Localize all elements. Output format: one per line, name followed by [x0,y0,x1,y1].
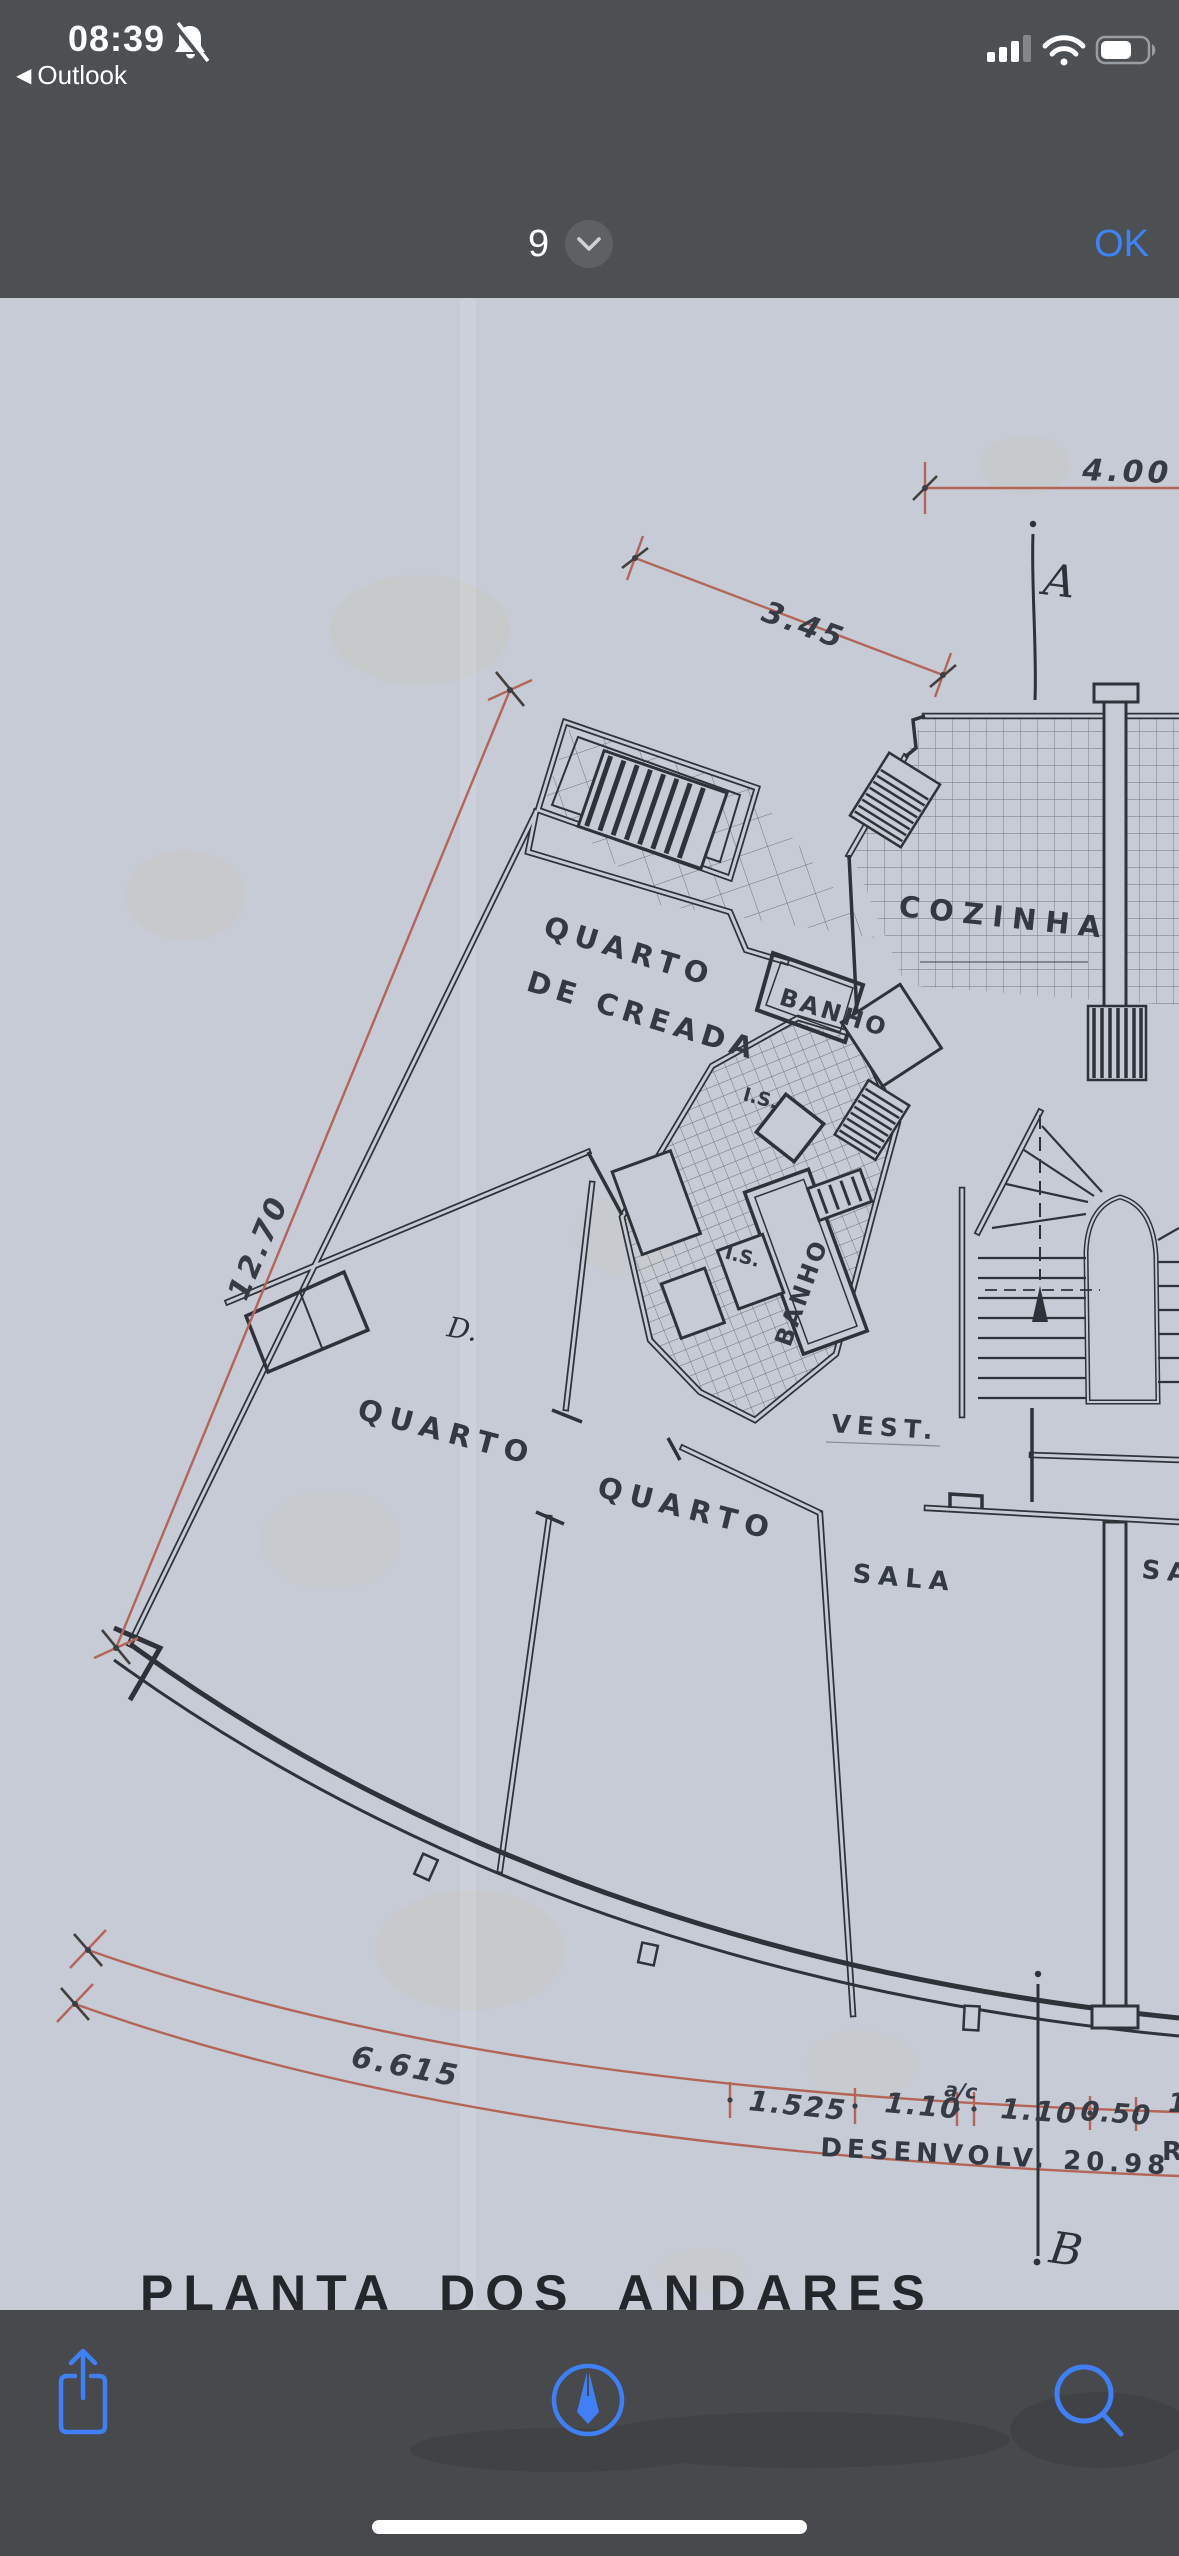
nav-bar: 9 OK [0,196,1179,292]
iphone-screen: QUARTO DE CREADA BANHO I.S. I.S. BANHO C… [0,0,1179,2556]
dimension-chain-3: 1.10 [1000,2092,1079,2130]
wifi-icon [1045,38,1083,66]
chevron-down-icon [576,236,602,252]
cellular-signal-icon [987,35,1031,62]
room-label-living-partial: SA [1140,1555,1179,1589]
page-dropdown-button[interactable] [565,220,613,268]
header-bar: 08:39 ◀ Outlook [0,0,1179,298]
dimension-development-partial: R [1162,2137,1179,2167]
share-button[interactable] [61,2351,105,2432]
markup-button[interactable] [554,2366,622,2434]
back-arrow-icon: ◀ [16,66,31,86]
notifications-muted-icon [170,22,210,64]
back-to-app-button[interactable]: ◀ Outlook [16,60,127,91]
page-selector[interactable]: 9 [528,196,613,292]
attachment-preview-image[interactable]: QUARTO DE CREADA BANHO I.S. I.S. BANHO C… [0,0,1179,2556]
dimension-chain-4: 0.50 [1080,2096,1153,2132]
dimension-top: 4.00 [1081,453,1173,491]
status-time: 08:39 [68,18,165,60]
ok-button[interactable]: OK [1094,196,1149,292]
bottom-toolbar [0,2310,1179,2556]
showthrough-shading [410,2392,1179,2472]
page-number: 9 [528,223,549,266]
battery-icon [1097,37,1155,63]
back-app-label: Outlook [37,60,127,91]
section-marker-b: B [1045,2222,1085,2277]
dimension-chain-partial: 1 [1168,2088,1179,2119]
dimension-chain-note: a/c [944,2077,979,2104]
room-label-closet: D. [444,1310,481,1348]
home-indicator[interactable] [372,2520,807,2534]
